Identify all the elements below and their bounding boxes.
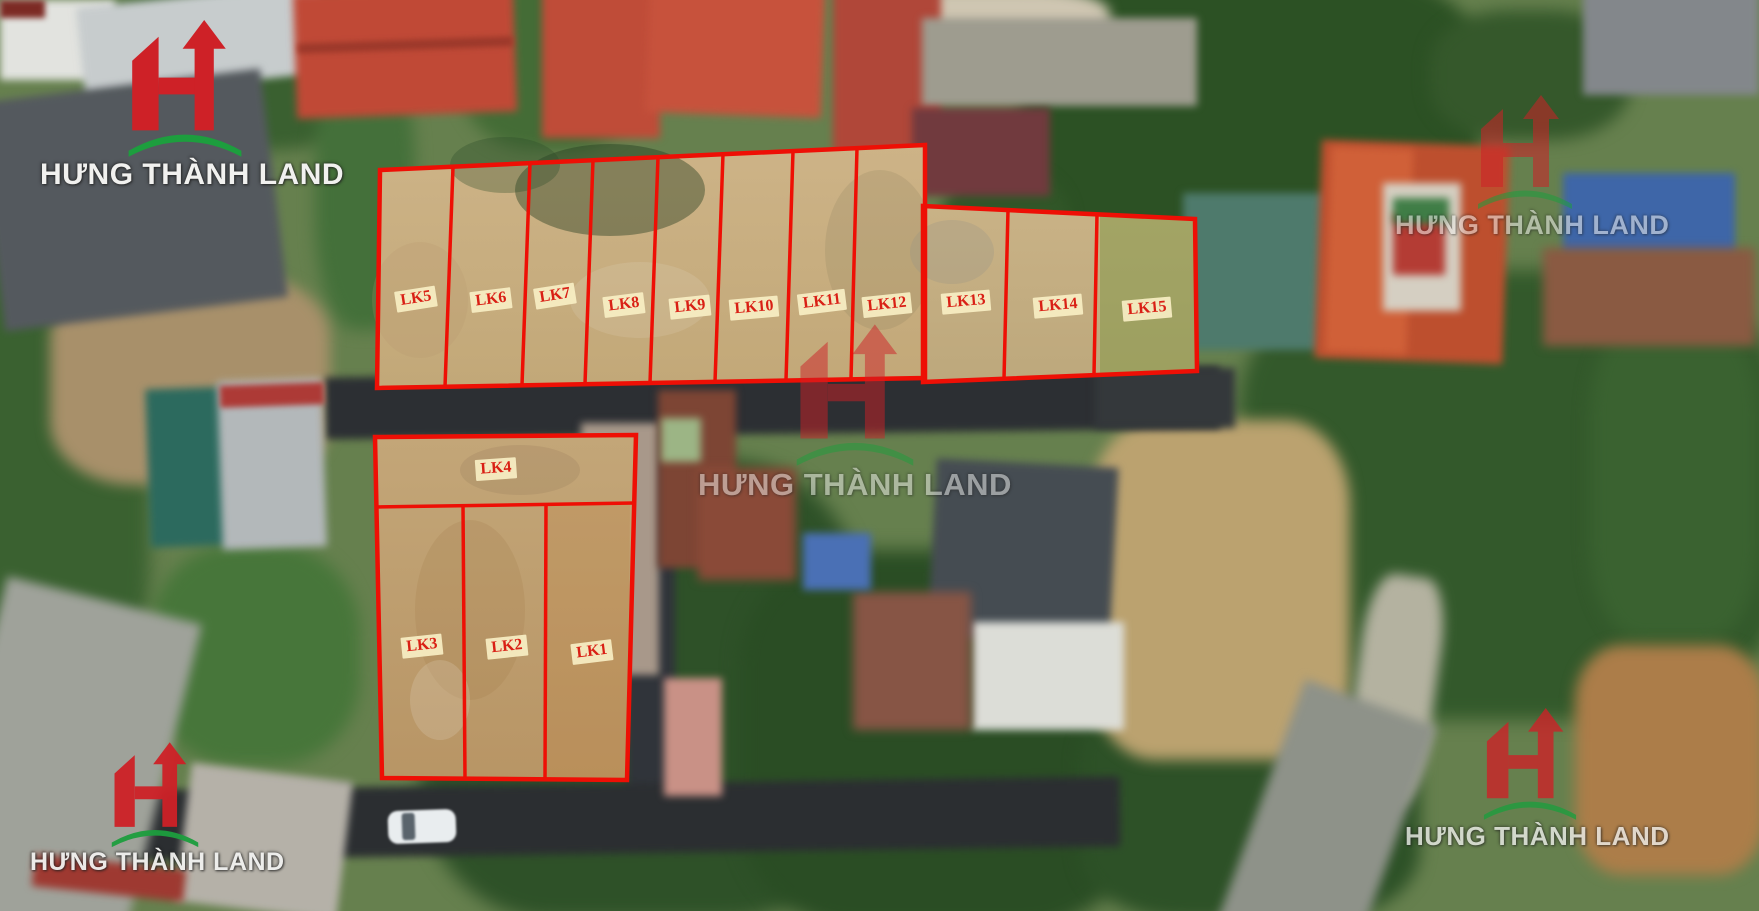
aerial-photo: LK1LK2LK3LK4LK5LK6LK7LK8LK9LK10LK11LK12L… xyxy=(0,0,1759,911)
brand-wordmark: HƯNG THÀNH LAND xyxy=(1405,821,1655,852)
brand-wordmark: HƯNG THÀNH LAND xyxy=(695,467,1015,503)
swoosh-arc-icon xyxy=(1478,191,1572,210)
ht-monogram-icon xyxy=(1481,698,1579,821)
ht-monogram-icon xyxy=(1475,85,1575,210)
ht-monogram-icon xyxy=(125,8,245,158)
watermark-bottom-left: HƯNG THÀNH LAND xyxy=(30,733,280,877)
plot-label: LK3 xyxy=(400,634,443,659)
watermark-top-left: HƯNG THÀNH LAND xyxy=(40,8,330,192)
plot-label: LK2 xyxy=(485,635,528,660)
swoosh-arc-icon xyxy=(129,135,242,157)
swoosh-arc-icon xyxy=(112,830,198,847)
watermark-center: HƯNG THÀNH LAND xyxy=(695,312,1015,503)
plot-label: LK4 xyxy=(475,457,517,481)
ht-monogram-icon xyxy=(109,733,201,848)
brand-wordmark: HƯNG THÀNH LAND xyxy=(40,158,330,192)
brand-wordmark: HƯNG THÀNH LAND xyxy=(30,848,280,877)
brand-wordmark: HƯNG THÀNH LAND xyxy=(1395,210,1655,241)
watermark-bottom-right: HƯNG THÀNH LAND xyxy=(1405,698,1655,852)
swoosh-arc-icon xyxy=(797,443,914,466)
plot-label: LK14 xyxy=(1033,294,1084,319)
watermark-upper-right: HƯNG THÀNH LAND xyxy=(1395,85,1655,241)
ht-monogram-icon xyxy=(793,312,917,467)
plot-block-west xyxy=(375,435,636,780)
swoosh-arc-icon xyxy=(1484,802,1576,820)
plot-label: LK13 xyxy=(941,290,992,315)
plot-label: LK15 xyxy=(1122,297,1173,322)
